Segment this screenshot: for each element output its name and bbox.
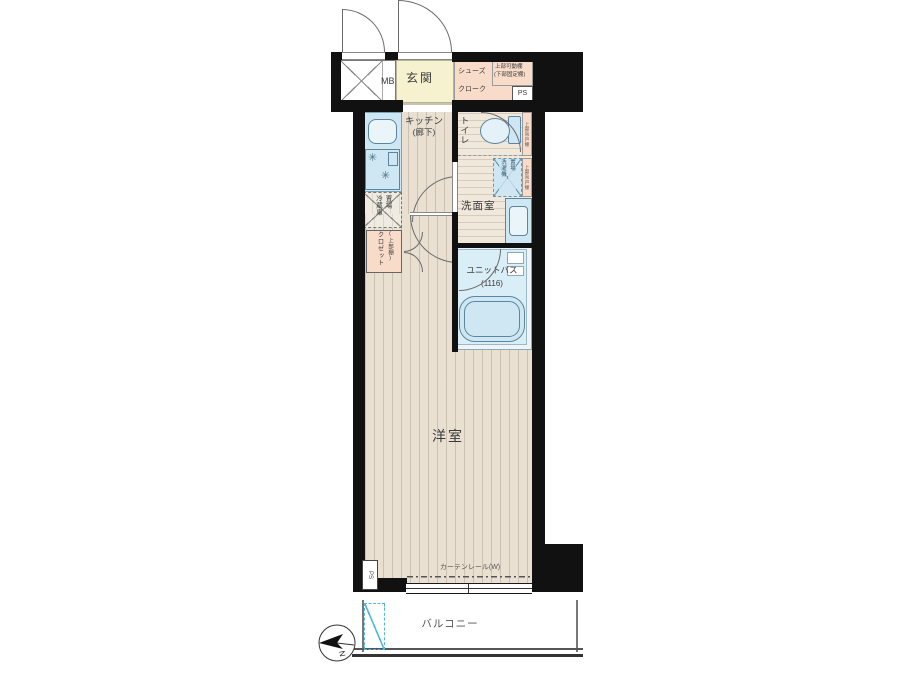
washer-label-col2: 置場 (508, 159, 516, 196)
fridge-label-col2: 置場 (384, 195, 391, 225)
washer-upper-cabinet: 上部吊戸棚 (522, 158, 532, 197)
toilet-upper-cabinet: 上部吊戸棚 (522, 112, 532, 156)
wall-under-cloak (452, 100, 533, 112)
wall-left (353, 112, 365, 592)
floor-plan: MB 玄関 シューズ クローク 上部可動棚 (下部固定棚) PS ✳ ✳ 冷蔵庫… (0, 0, 900, 675)
stove: ✳ ✳ (365, 149, 400, 190)
mb-doorway (342, 52, 385, 60)
vanity-sink (509, 206, 528, 236)
curtain-rail-label: カーテンレール(W) (407, 564, 533, 572)
wall-mid-vertical (452, 212, 458, 352)
wall-bath-top (452, 243, 532, 248)
wall-toilet-left (452, 112, 458, 162)
wall-under-mb (331, 100, 403, 112)
balcony-right-rail (576, 600, 578, 652)
pipe-space-top-label: PS (518, 90, 527, 98)
kitchen-label-line2: (廊下) (398, 128, 450, 138)
window-center-tick (468, 584, 469, 593)
entrance-doorway (398, 52, 452, 60)
window-middle-line (406, 588, 532, 589)
washer-space: 洗濯機 置場 (493, 158, 522, 197)
compass: N (314, 617, 360, 665)
upper-shelf-note-2: (下部固定棚) (494, 72, 525, 78)
curtain-rail-line (407, 576, 533, 578)
wall-top-right-block (533, 52, 583, 112)
washroom-label: 洗面室 (461, 200, 496, 212)
wall-right (532, 112, 545, 552)
shoe-cloak-label-1: シューズ (458, 68, 486, 76)
bathtub-inner-line (464, 301, 520, 337)
kitchen-label: キッチン (廊下) (398, 117, 450, 138)
entrance-door-arc (398, 0, 452, 52)
genkan-label: 玄関 (406, 72, 434, 86)
western-room-label: 洋室 (398, 428, 498, 444)
toilet-upper-cabinet-label: 上部吊戸棚 (524, 122, 530, 147)
pipe-space-bottom-label: PS (367, 571, 373, 579)
upper-shelf-note-1: 上部可動棚 (495, 64, 523, 70)
balcony-bottom-line-1 (352, 648, 583, 650)
washer-label-col1: 洗濯機 (499, 159, 507, 196)
balcony-partition (364, 603, 385, 650)
bath-shelf (507, 252, 524, 264)
closet-note-label: (上部棚) (386, 231, 394, 272)
toilet-label: トイレ (459, 116, 469, 145)
meter-box-label: MB (381, 76, 395, 86)
pipe-space-bottom: PS (362, 560, 378, 590)
fridge-label-col1: 冷蔵庫 (374, 195, 381, 225)
wall-bottom-right-block (532, 544, 583, 592)
washroom-doorway (452, 162, 458, 212)
stove-grill (388, 152, 398, 166)
toilet-washroom-divider (458, 155, 522, 156)
stove-burner-icon: ✳ (381, 169, 390, 182)
washer-upper-cabinet-label: 上部吊戸棚 (524, 165, 530, 190)
closet-label: クロゼット (374, 231, 384, 272)
balcony-bottom-line-2 (352, 654, 583, 657)
wall-top-mid-jamb (384, 52, 398, 60)
fridge-space-label: 冷蔵庫 置場 (366, 195, 399, 225)
balcony-label: バルコニー (400, 618, 500, 630)
genkan-step-line (396, 103, 454, 105)
meter-box-cross (341, 61, 383, 101)
closet: クロゼット (上部棚) (366, 230, 402, 273)
mb-door-arc (342, 9, 385, 52)
stove-burner-icon: ✳ (368, 151, 377, 164)
shoe-cloak-label-2: クローク (458, 86, 486, 94)
window (406, 583, 532, 594)
kitchen-sink (368, 119, 397, 144)
